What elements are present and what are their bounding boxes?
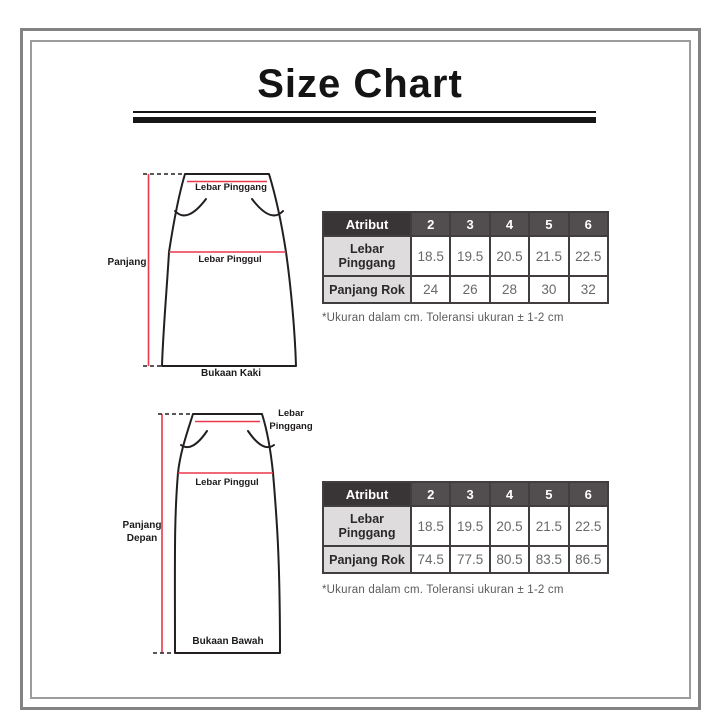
table-row-label: Lebar Pinggang: [323, 236, 411, 276]
table-header-cell: 4: [490, 482, 529, 506]
table-header-cell: 3: [450, 212, 489, 236]
table-cell: 30: [529, 276, 568, 303]
waist-label-line1: Lebar: [269, 408, 312, 421]
table-cell: 20.5: [490, 236, 529, 276]
table-cell: 74.5: [411, 546, 450, 573]
table-header-row: Atribut 2 3 4 5 6: [323, 212, 608, 236]
hip-label: Lebar Pinggul: [198, 254, 261, 267]
measurement-note: *Ukuran dalam cm. Toleransi ukuran ± 1-2…: [322, 312, 564, 324]
table-header-cell: 6: [569, 482, 608, 506]
table-cell: 86.5: [569, 546, 608, 573]
table-header-cell: 5: [529, 482, 568, 506]
table-header-cell: 3: [450, 482, 489, 506]
page-title: Size Chart: [128, 62, 592, 107]
table-cell: 32: [569, 276, 608, 303]
table-header-cell: Atribut: [323, 212, 411, 236]
table-cell: 21.5: [529, 506, 568, 546]
length-label: Panjang Depan: [123, 520, 162, 545]
table-cell: 19.5: [450, 506, 489, 546]
table-row: Lebar Pinggang 18.5 19.5 20.5 21.5 22.5: [323, 506, 608, 546]
waist-label: Lebar Pinggang: [195, 182, 267, 195]
table-header-cell: 4: [490, 212, 529, 236]
table-header-cell: 6: [569, 212, 608, 236]
table-cell: 26: [450, 276, 489, 303]
size-table-short-skirt: Atribut 2 3 4 5 6 Lebar Pinggang 18.5 19…: [322, 211, 609, 304]
table-cell: 24: [411, 276, 450, 303]
measurement-note: *Ukuran dalam cm. Toleransi ukuran ± 1-2…: [322, 584, 564, 596]
length-label-line1: Panjang: [123, 520, 162, 533]
table-cell: 80.5: [490, 546, 529, 573]
table-row-label: Lebar Pinggang: [323, 506, 411, 546]
table-cell: 83.5: [529, 546, 568, 573]
table-cell: 20.5: [490, 506, 529, 546]
table-cell: 18.5: [411, 506, 450, 546]
title-underline-thin: [133, 111, 596, 113]
hip-label: Lebar Pinggul: [195, 477, 258, 490]
skirt-diagram-short: [90, 160, 310, 390]
hem-label: Bukaan Kaki: [201, 368, 261, 381]
length-label: Panjang: [108, 257, 147, 270]
hem-label: Bukaan Bawah: [192, 636, 263, 649]
table-cell: 21.5: [529, 236, 568, 276]
table-header-cell: Atribut: [323, 482, 411, 506]
skirt-outline: [162, 174, 296, 366]
table-cell: 22.5: [569, 506, 608, 546]
table-header-row: Atribut 2 3 4 5 6: [323, 482, 608, 506]
table-row: Panjang Rok 24 26 28 30 32: [323, 276, 608, 303]
table-row-label: Panjang Rok: [323, 546, 411, 573]
waist-label-line2: Pinggang: [269, 421, 312, 434]
table-cell: 22.5: [569, 236, 608, 276]
waist-label: Lebar Pinggang: [269, 408, 312, 433]
table-row-label: Panjang Rok: [323, 276, 411, 303]
table-header-cell: 2: [411, 482, 450, 506]
length-label-line2: Depan: [123, 533, 162, 546]
table-row: Lebar Pinggang 18.5 19.5 20.5 21.5 22.5: [323, 236, 608, 276]
table-cell: 28: [490, 276, 529, 303]
skirt-outline: [175, 414, 280, 653]
title-underline-thick: [133, 117, 596, 123]
size-table-long-skirt: Atribut 2 3 4 5 6 Lebar Pinggang 18.5 19…: [322, 481, 609, 574]
table-header-cell: 2: [411, 212, 450, 236]
table-header-cell: 5: [529, 212, 568, 236]
size-chart-page: Size Chart Lebar Pinggang Lebar Pinggul …: [0, 0, 720, 720]
table-cell: 19.5: [450, 236, 489, 276]
table-row: Panjang Rok 74.5 77.5 80.5 83.5 86.5: [323, 546, 608, 573]
table-cell: 77.5: [450, 546, 489, 573]
table-cell: 18.5: [411, 236, 450, 276]
